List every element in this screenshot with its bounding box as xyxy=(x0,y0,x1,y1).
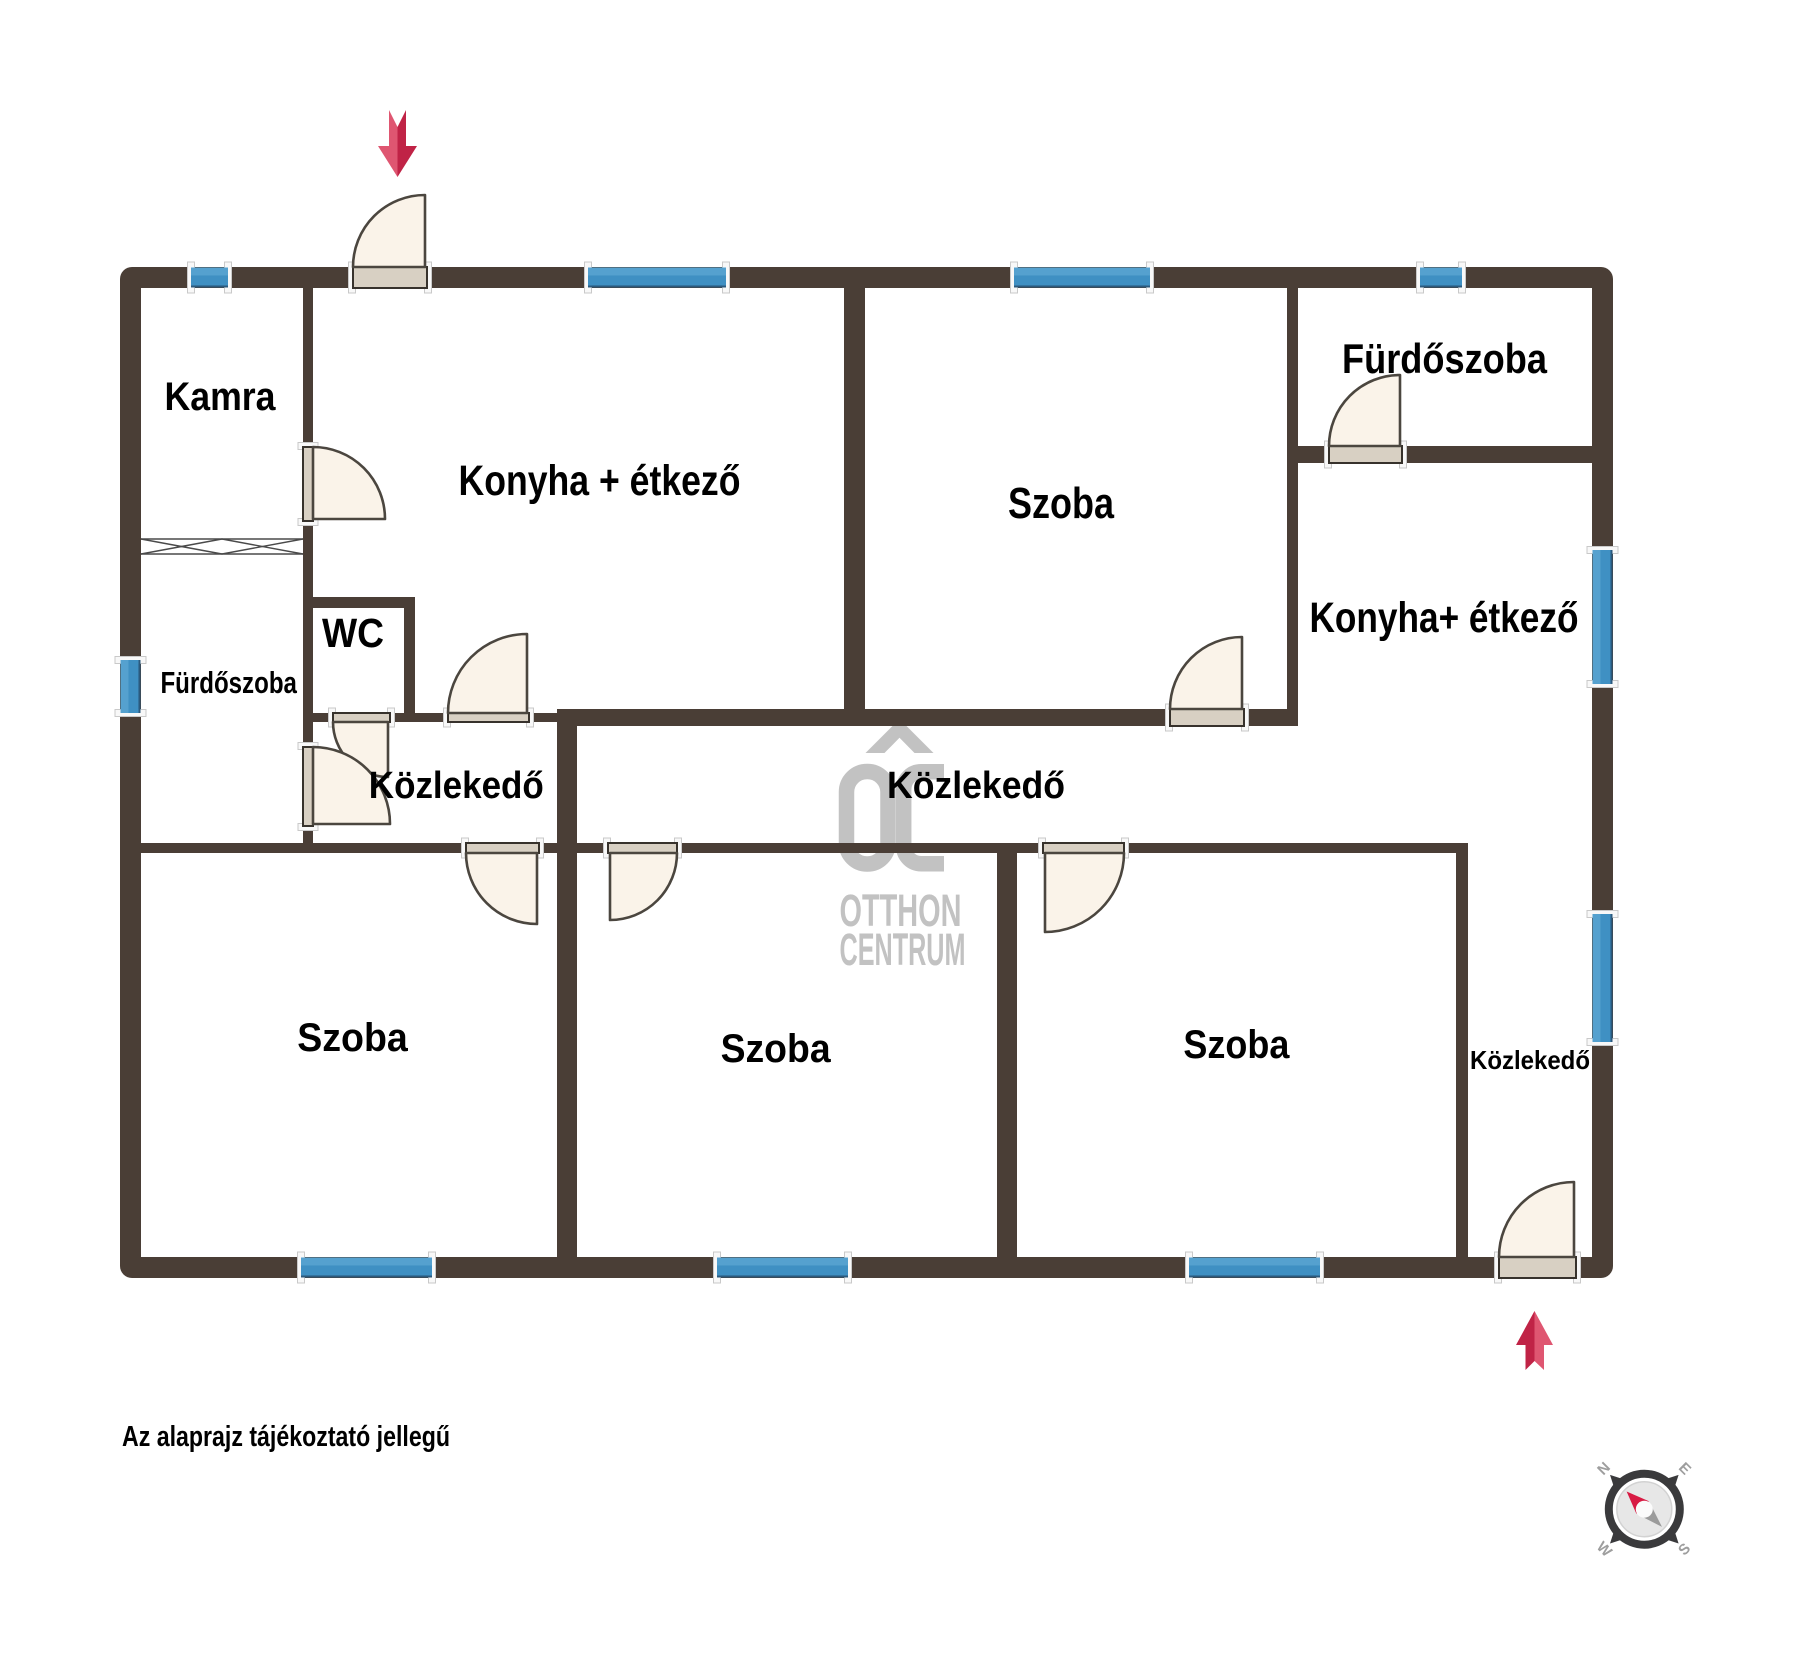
svg-text:Szoba: Szoba xyxy=(297,1016,409,1060)
svg-text:CENTRUM: CENTRUM xyxy=(840,924,966,975)
svg-text:Közlekedő: Közlekedő xyxy=(887,764,1065,807)
svg-text:Szoba: Szoba xyxy=(1008,479,1114,528)
svg-text:Az alaprajz tájékoztató jelleg: Az alaprajz tájékoztató jellegű xyxy=(122,1421,450,1453)
svg-text:Fürdőszoba: Fürdőszoba xyxy=(160,666,297,700)
svg-text:Konyha + étkező: Konyha + étkező xyxy=(459,457,741,505)
svg-text:Fürdőszoba: Fürdőszoba xyxy=(1342,336,1548,382)
svg-text:Kamra: Kamra xyxy=(165,375,277,419)
svg-text:Szoba: Szoba xyxy=(1183,1023,1290,1067)
svg-text:Közlekedő: Közlekedő xyxy=(369,764,544,807)
svg-text:Szoba: Szoba xyxy=(721,1027,832,1071)
svg-text:Konyha+ étkező: Konyha+ étkező xyxy=(1310,594,1579,642)
svg-text:WC: WC xyxy=(322,610,384,656)
svg-text:Közlekedő: Közlekedő xyxy=(1470,1045,1590,1075)
